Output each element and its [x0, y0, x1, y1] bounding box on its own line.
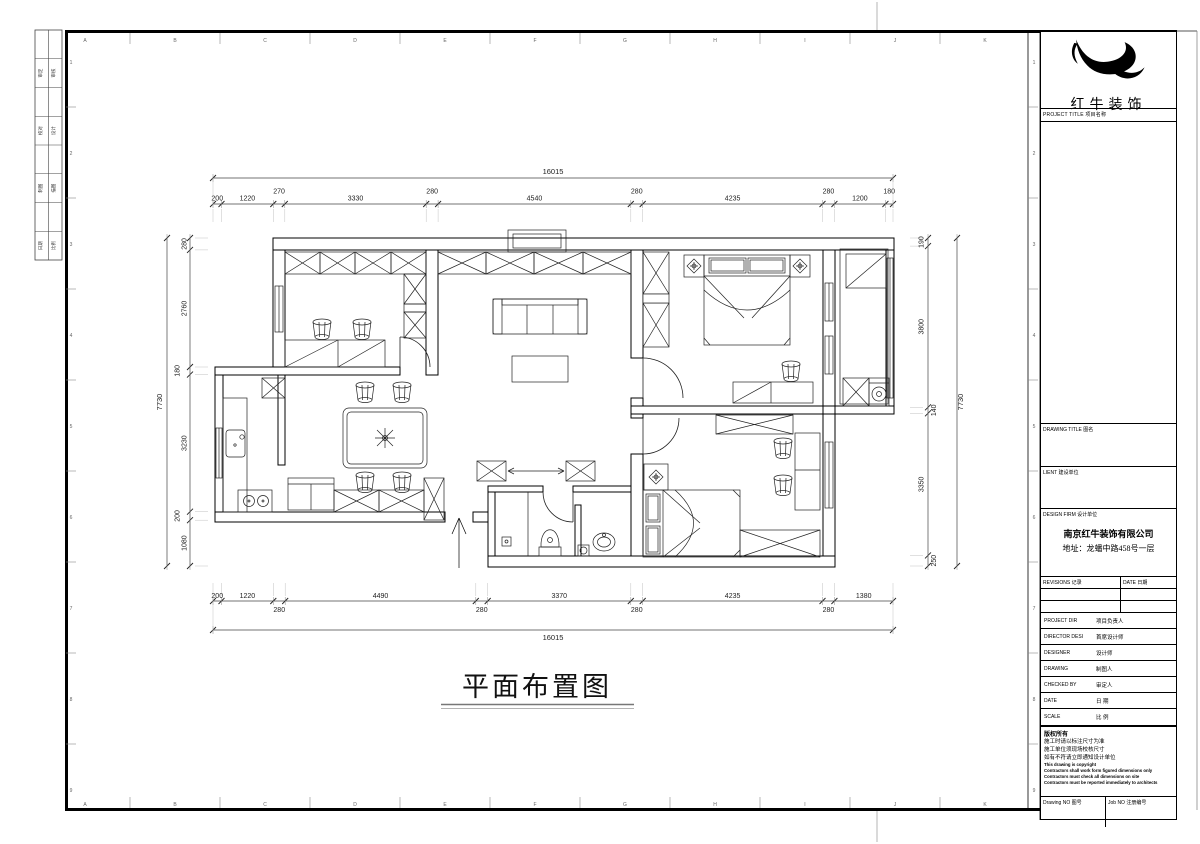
credit-row: PROJECT DIR项目负责人	[1041, 613, 1176, 629]
dim-label: 280	[823, 189, 835, 196]
cabinets	[262, 252, 869, 557]
dim-bottom-total: 16015	[543, 633, 564, 642]
dim-top-total: 16015	[543, 167, 564, 176]
cad-canvas: AABBCCDDEEFFGGHHIIJJKK112233445566778899…	[0, 0, 1200, 844]
x-cabinet	[477, 461, 506, 481]
credit-row-cn: 项目负责人	[1096, 617, 1124, 625]
grid-letter: G	[623, 38, 627, 44]
signoff-cell: 设计	[50, 126, 57, 135]
credit-row: DATE日 期	[1041, 693, 1176, 709]
master-door	[643, 358, 683, 398]
sideboard	[288, 478, 334, 510]
study-stool	[313, 319, 331, 340]
dim-label: 280	[426, 189, 438, 196]
sliding-rod	[508, 468, 564, 474]
balcony-cabinet	[846, 254, 886, 288]
job-no-label: Job NO 注册编号	[1106, 797, 1176, 827]
dim-label: 280	[631, 189, 643, 196]
grid-letter: H	[713, 802, 717, 808]
dim-label: 200	[175, 510, 182, 522]
design-firm-label: DESIGN FIRM 设计单位	[1041, 509, 1176, 521]
copyright-line-cn: 如有不符请立即通知设计单位	[1044, 754, 1173, 762]
revisions-label: REVISIONS 记录	[1041, 577, 1121, 588]
design-firm-info: 南京红牛装饰有限公司 地址：龙蟠中路458号一层	[1041, 527, 1176, 577]
bathroom-door	[543, 492, 573, 522]
credit-row: DRAWING制图人	[1041, 661, 1176, 677]
grid-number: 1	[1033, 60, 1036, 66]
dim-label: 3230	[182, 435, 189, 451]
credit-row-en: DIRECTOR DESI	[1041, 634, 1096, 640]
dim-label: 1080	[182, 535, 189, 551]
windows	[216, 258, 893, 508]
dim-total-line	[164, 234, 170, 570]
x-cabinet	[285, 252, 320, 274]
grid-letter: K	[983, 802, 987, 808]
revision-row	[1041, 601, 1176, 613]
basin	[593, 533, 615, 551]
dim-label: 180	[175, 365, 182, 377]
coffee-table	[512, 356, 568, 382]
dim-label: 1220	[240, 196, 256, 203]
grid-letter: H	[713, 38, 717, 44]
grid-number: 5	[1033, 424, 1036, 430]
drawing-title: 平面布置图	[441, 672, 634, 709]
dim-label: 250	[931, 555, 938, 567]
x-cabinet	[643, 252, 669, 294]
shower-drain	[502, 537, 511, 546]
signoff-cell: 制图	[37, 183, 44, 192]
copyright-cn-lines: 施工时请以标注尺寸为准施工单位须现场校核尺寸如有不符请立即通知设计单位	[1044, 738, 1173, 762]
grid-number: 4	[1033, 333, 1036, 339]
grid-letter: F	[533, 802, 536, 808]
x-cabinet	[404, 312, 426, 338]
credit-row: CHECKED BY审定人	[1041, 677, 1176, 693]
x-cabinet	[583, 252, 631, 274]
revisions-date-label: DATE 日期	[1121, 577, 1176, 588]
grid-letter: D	[353, 802, 357, 808]
credit-row-cn: 日 期	[1096, 697, 1109, 705]
table-lamp	[793, 259, 807, 273]
grid-letter: B	[173, 802, 177, 808]
grid-number: 8	[70, 697, 73, 703]
credit-row-en: DATE	[1041, 698, 1096, 704]
signoff-cell: 校对	[37, 126, 44, 135]
dining-chair	[356, 382, 374, 403]
grid-letter: C	[263, 38, 267, 44]
credit-row-en: DRAWING	[1041, 666, 1096, 672]
dim-label: 2760	[182, 301, 189, 317]
grid-letter: C	[263, 802, 267, 808]
credit-row-cn: 制图人	[1096, 665, 1113, 673]
dim-label: 3330	[348, 196, 364, 203]
signoff-cell: 审定	[37, 68, 44, 77]
dim-right-total: 7730	[956, 394, 965, 411]
credit-row-en: DESIGNER	[1041, 650, 1096, 656]
dim-label: 280	[631, 607, 643, 614]
client-space	[1041, 479, 1176, 509]
design-firm-name: 南京红牛装饰有限公司	[1041, 527, 1176, 540]
credit-rows: PROJECT DIR项目负责人DIRECTOR DESI首席设计师DESIGN…	[1041, 613, 1176, 725]
drawing-title-space	[1041, 436, 1176, 467]
dining-chair	[393, 382, 411, 403]
copyright-en-lines: This drawing is copyrightContractors sha…	[1044, 762, 1173, 786]
dim-label: 280	[182, 238, 189, 250]
stove	[238, 490, 272, 512]
study-desk	[285, 340, 385, 367]
dim-chain: 280276018032302001080	[175, 234, 209, 570]
grid-number: 3	[1033, 242, 1036, 248]
credit-row-en: SCALE	[1041, 714, 1096, 720]
dim-label: 1220	[240, 593, 256, 600]
dim-chain: 20012202804490280337028042352801380	[210, 583, 896, 614]
credit-row-cn: 设计师	[1096, 649, 1113, 657]
logo-section: 红牛装饰	[1041, 32, 1176, 109]
x-cabinet	[404, 274, 426, 304]
x-cabinet	[643, 303, 669, 347]
grid-number: 2	[1033, 151, 1036, 157]
copyright-line-cn: 施工时请以标注尺寸为准	[1044, 738, 1173, 746]
title-block: 红牛装饰 PROJECT TITLE 项目名称 DRAWING TITLE 图名…	[1040, 31, 1177, 820]
sofa	[493, 299, 587, 334]
dim-label: 180	[883, 189, 895, 196]
dim-label: 3370	[551, 593, 567, 600]
dim-label: 270	[273, 189, 285, 196]
grid-letter: F	[533, 38, 536, 44]
x-cabinet	[379, 490, 424, 512]
copyright-line-en: Contractors must be reported immediately…	[1044, 780, 1173, 786]
dim-chain: 20012202703330280454028042352801200180	[210, 189, 896, 223]
grid-number: 2	[70, 151, 73, 157]
x-cabinet	[355, 252, 391, 274]
dim-label: 1380	[856, 593, 872, 600]
grid-number: 1	[70, 60, 73, 66]
dim-label: 280	[476, 607, 488, 614]
dim-label: 3350	[919, 476, 926, 492]
dim-chain: 19038001403350250	[910, 234, 938, 570]
kitchen-sink	[226, 430, 245, 457]
dresser	[733, 382, 813, 403]
dim-label: 280	[273, 607, 285, 614]
grid-number: 7	[1033, 606, 1036, 612]
x-cabinet	[320, 252, 355, 274]
grid-number: 9	[70, 788, 73, 794]
x-cabinet	[391, 252, 426, 274]
credit-row-en: CHECKED BY	[1041, 682, 1096, 688]
x-cabinet	[486, 252, 534, 274]
drawing-title-label: DRAWING TITLE 图名	[1041, 424, 1176, 436]
signoff-cell: 审核	[50, 68, 57, 77]
study-cabinet-box	[404, 304, 426, 312]
credit-row: DESIGNER设计师	[1041, 645, 1176, 661]
number-row: Drawing NO 图号 Job NO 注册编号	[1041, 796, 1176, 827]
dining-table	[343, 408, 427, 468]
credit-row: DIRECTOR DESI首席设计师	[1041, 629, 1176, 645]
grid-letter: J	[894, 802, 897, 808]
dining-chair	[393, 472, 411, 493]
bedroom2-door	[643, 418, 679, 454]
walls	[215, 238, 894, 567]
copyright-block: 版权所有 施工时请以标注尺寸为准施工单位须现场校核尺寸如有不符请立即通知设计单位…	[1041, 725, 1176, 796]
grid-number: 6	[70, 515, 73, 521]
drawing-sheet: AABBCCDDEEFFGGHHIIJJKK112233445566778899…	[0, 0, 1200, 844]
drawing-title-text: 平面布置图	[462, 672, 612, 702]
grid-letter: B	[173, 38, 177, 44]
grid-letter: D	[353, 38, 357, 44]
desk-chair	[774, 475, 792, 496]
drawing-no-label: Drawing NO 图号	[1041, 797, 1106, 827]
dresser-stool	[782, 361, 800, 382]
grid-letter: A	[83, 802, 87, 808]
signoff-cell: 描图	[50, 183, 57, 192]
entry-arrow	[452, 518, 466, 568]
credit-row-en: PROJECT DIR	[1041, 618, 1096, 624]
dim-label: 280	[823, 607, 835, 614]
rednow-bull-logo	[1057, 36, 1161, 88]
x-cabinet	[740, 530, 820, 557]
credit-row-cn: 比 例	[1096, 713, 1109, 721]
sheet-frame	[65, 2, 1197, 842]
grid-letter: I	[804, 38, 805, 44]
credit-row-cn: 审定人	[1096, 681, 1113, 689]
copyright-line-cn: 施工单位须现场校核尺寸	[1044, 746, 1173, 754]
credit-row-cn: 首席设计师	[1096, 633, 1124, 641]
grid-number: 7	[70, 606, 73, 612]
grid-number: 5	[70, 424, 73, 430]
grid-number: 6	[1033, 515, 1036, 521]
x-cabinet	[334, 490, 379, 512]
x-cabinet	[843, 378, 869, 406]
dim-label: 190	[919, 236, 926, 248]
x-cabinet	[534, 252, 583, 274]
signoff-strip: 审定审核校对设计制图描图日期比例	[35, 30, 62, 260]
client-label: LIENT 建设单位	[1041, 467, 1176, 479]
grid-letter: E	[443, 38, 447, 44]
master-bed	[704, 255, 790, 345]
grid-letter: K	[983, 38, 987, 44]
grid-letter: I	[804, 802, 805, 808]
x-cabinet	[438, 252, 486, 274]
grid-number: 3	[70, 242, 73, 248]
dim-label: 4235	[725, 593, 741, 600]
design-firm-address: 地址：龙蟠中路458号一层	[1041, 543, 1176, 554]
dim-label: 140	[931, 404, 938, 416]
dim-label: 1200	[852, 196, 868, 203]
grid-letter: E	[443, 802, 447, 808]
revisions-header: REVISIONS 记录 DATE 日期	[1041, 577, 1176, 589]
table-lamp	[649, 470, 663, 484]
dining-chair	[356, 472, 374, 493]
study-stool	[353, 319, 371, 340]
grid-number: 4	[70, 333, 73, 339]
credit-row: SCALE比 例	[1041, 709, 1176, 725]
project-title-space	[1041, 122, 1176, 424]
bed2	[643, 490, 740, 557]
copyright-title: 版权所有	[1044, 729, 1173, 738]
dim-label: 4540	[527, 196, 543, 203]
desk-chair	[774, 438, 792, 459]
x-cabinet	[566, 461, 595, 481]
grid-letter: J	[894, 38, 897, 44]
desk2	[795, 433, 820, 510]
signoff-cell: 比例	[50, 241, 57, 250]
grid-letter: G	[623, 802, 627, 808]
grid-number: 8	[1033, 697, 1036, 703]
table-lamp	[687, 259, 701, 273]
dim-label: 4490	[373, 593, 389, 600]
grid-letter: A	[83, 38, 87, 44]
x-cabinet	[716, 415, 793, 434]
toilet	[539, 530, 561, 556]
grid-number: 9	[1033, 788, 1036, 794]
kitchen-counter	[223, 398, 247, 512]
dim-label: 4235	[725, 196, 741, 203]
revision-row	[1041, 589, 1176, 601]
dim-left-total: 7730	[155, 394, 164, 411]
dim-label: 3800	[919, 319, 926, 335]
